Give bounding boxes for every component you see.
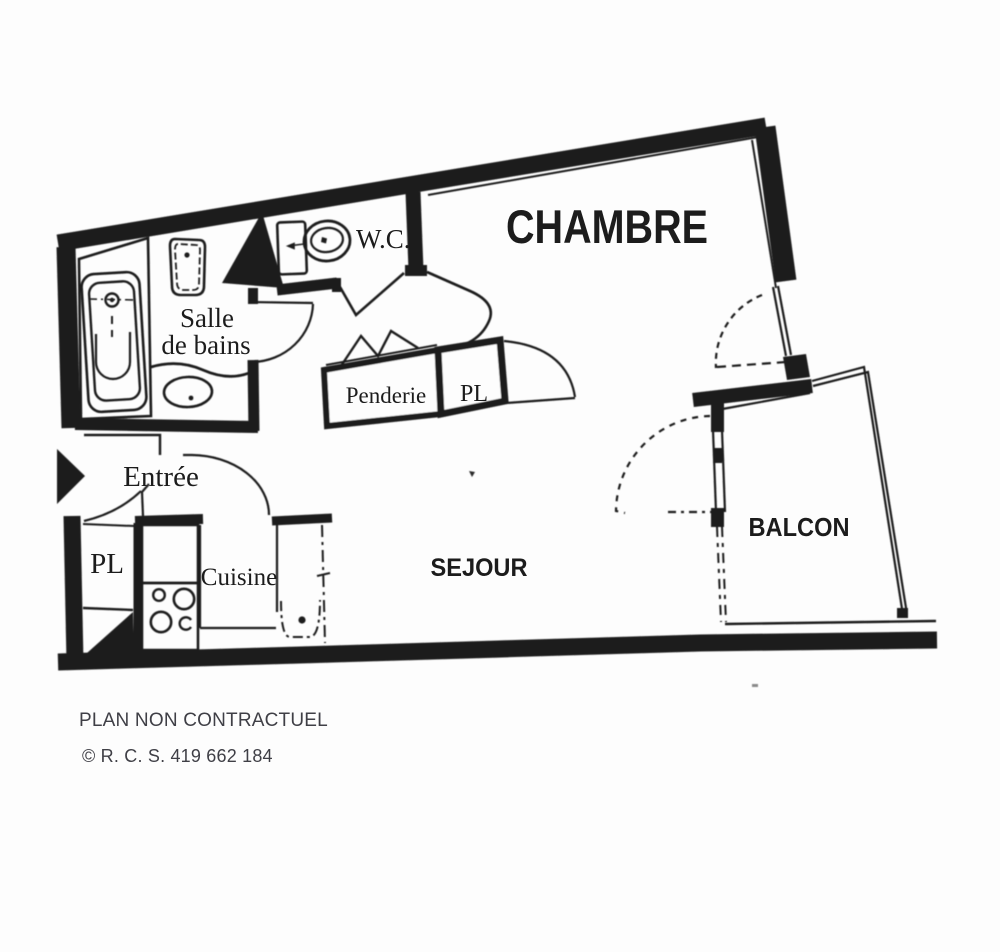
- svg-text:PLAN NON CONTRACTUEL: PLAN NON CONTRACTUEL: [79, 710, 328, 731]
- svg-text:Salle: Salle: [180, 303, 234, 333]
- svg-text:Entrée: Entrée: [123, 461, 199, 493]
- svg-text:© R. C. S. 419 662 184: © R. C. S. 419 662 184: [82, 746, 273, 766]
- svg-text:BALCON: BALCON: [749, 512, 850, 542]
- svg-text:W.C.: W.C.: [356, 224, 411, 254]
- svg-text:SEJOUR: SEJOUR: [431, 554, 528, 582]
- svg-text:Cuisine: Cuisine: [201, 564, 277, 591]
- svg-text:de bains: de bains: [161, 330, 250, 360]
- svg-text:Penderie: Penderie: [346, 383, 426, 408]
- svg-text:PL: PL: [90, 548, 124, 580]
- svg-text:CHAMBRE: CHAMBRE: [506, 200, 708, 253]
- svg-text:PL: PL: [460, 381, 488, 407]
